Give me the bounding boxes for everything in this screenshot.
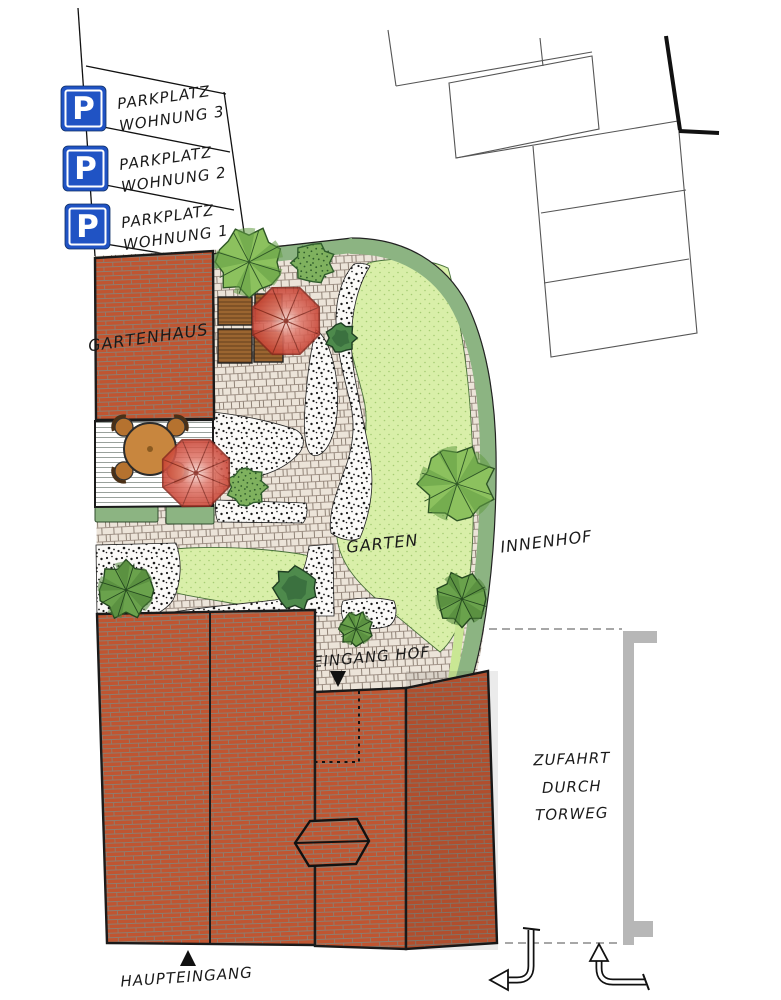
- building-right-shade: [406, 671, 498, 950]
- parasol-icon: [253, 288, 320, 355]
- parasol-icon: [163, 440, 230, 507]
- haupteingang-label: HAUPTEINGANG: [120, 963, 254, 990]
- building-middle: [315, 688, 406, 949]
- zufahrt-line1: ZUFAHRT: [532, 749, 612, 770]
- entrance-triangle-icon: [180, 950, 196, 966]
- parking-sign-letter: P: [74, 151, 97, 187]
- innenhof-label: INNENHOF: [499, 526, 593, 556]
- parking-sign-icon: P: [61, 86, 106, 131]
- zufahrt-line3: TORWEG: [535, 804, 609, 825]
- site-plan-svg: P P P PARKPLATZ WOHNUNG 3 PARKPLATZ WOHN…: [0, 0, 781, 1000]
- parking-sign-letter: P: [72, 91, 95, 127]
- zufahrt-line2: DURCH: [542, 777, 602, 797]
- parking-signs: P P P: [61, 86, 110, 249]
- building-left: [97, 610, 315, 945]
- parking-sign-letter: P: [76, 209, 99, 245]
- boundary-wall-mark: [666, 36, 719, 133]
- torweg-wall: [623, 631, 657, 945]
- site-plan: P P P PARKPLATZ WOHNUNG 3 PARKPLATZ WOHN…: [0, 0, 781, 1000]
- parking-sign-icon: P: [63, 146, 108, 191]
- parking-sign-icon: P: [65, 204, 110, 249]
- turn-arrow-up-icon: [590, 944, 649, 990]
